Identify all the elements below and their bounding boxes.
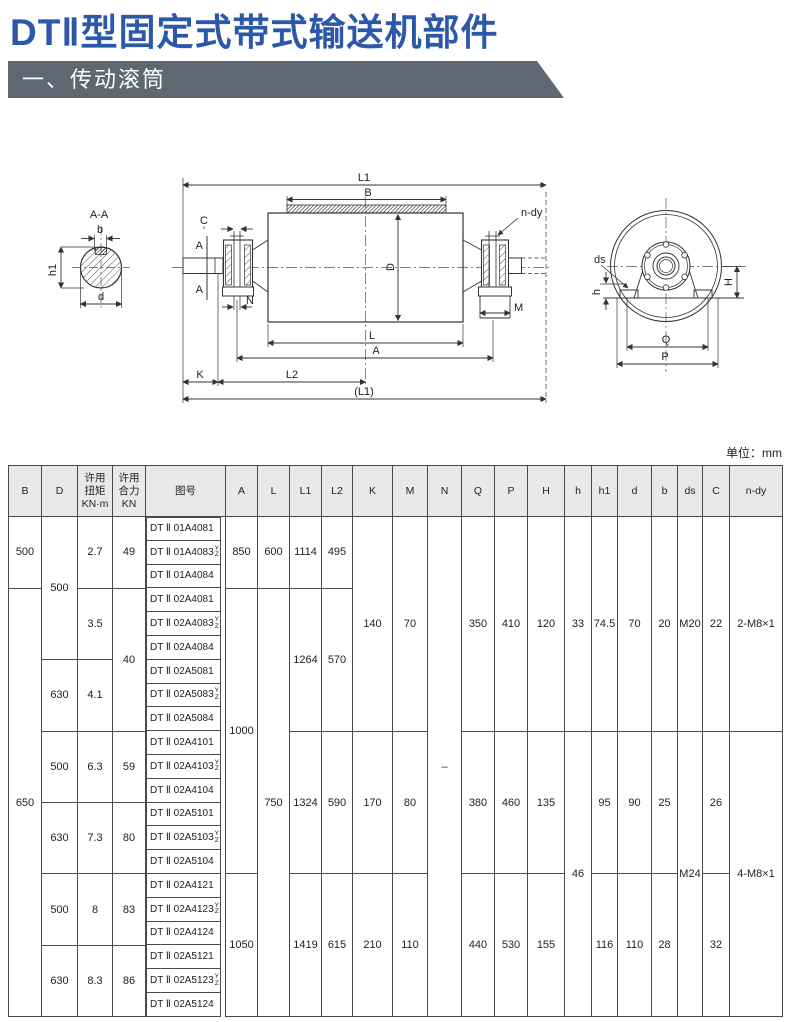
cell-L: 750: [258, 588, 290, 1016]
cell-Q: 440: [462, 874, 495, 1017]
col-force: 许用 合力 KN: [113, 466, 146, 517]
unit-note: 单位：mm: [8, 444, 782, 461]
cell-L1: 1419: [290, 874, 322, 1017]
dim-label-Q: Q: [662, 334, 671, 346]
cell-d: 70: [618, 517, 652, 732]
cell-A: 1000: [226, 588, 258, 874]
cell-P: 530: [495, 874, 528, 1017]
cell-M: 70: [393, 517, 428, 732]
drawing-number-cell: DT Ⅱ 01A4084: [146, 565, 226, 589]
section-view-a-a: A-A b h1 d: [47, 209, 130, 309]
dim-label-L: L: [369, 330, 375, 342]
col-ds: ds: [678, 466, 703, 517]
section-banner-label: 一、传动滚筒: [8, 61, 564, 98]
cell-h: 33: [565, 517, 592, 732]
cell-A: 1050: [226, 874, 258, 1017]
dim-label-b: b: [97, 224, 103, 236]
cell-H: 120: [528, 517, 565, 732]
drawing-number-cell: DT Ⅱ 02A4121: [146, 874, 226, 898]
end-view: ds h H Q P: [591, 198, 746, 372]
cell-torque: 2.7: [78, 517, 113, 589]
cell-torque: 6.3: [78, 731, 113, 802]
dim-label-A: A: [372, 345, 380, 357]
table-row: 500 8 83 DT Ⅱ 02A4121 1050 1419 615 210 …: [9, 874, 783, 898]
cell-D: 630: [42, 803, 78, 874]
col-L2: L2: [322, 466, 353, 517]
dim-label-H: H: [723, 278, 735, 286]
col-K: K: [353, 466, 393, 517]
section-marker-a-bottom: A: [196, 284, 204, 296]
lagging-band: [287, 205, 446, 213]
drawing-number-cell: DT Ⅱ 02A4103YZ: [146, 755, 226, 779]
cell-h1: 95: [592, 731, 618, 874]
page: DTⅡ型固定式带式输送机部件 一、传动滚筒 A-A: [0, 0, 800, 1022]
cell-B: 650: [9, 588, 42, 1016]
keyway: [96, 248, 107, 255]
col-torque: 许用 扭矩 KN·m: [78, 466, 113, 517]
col-b: b: [652, 466, 678, 517]
dim-label-D: D: [385, 263, 397, 271]
col-M: M: [393, 466, 428, 517]
col-P: P: [495, 466, 528, 517]
dim-label-M: M: [514, 302, 523, 314]
cell-b: 20: [652, 517, 678, 732]
cell-force: 59: [113, 731, 146, 802]
cell-M: 110: [393, 874, 428, 1017]
dim-label-K: K: [196, 369, 204, 381]
drawing-number-cell: DT Ⅱ 02A5123YZ: [146, 969, 226, 993]
table-row: 500 6.3 59 DT Ⅱ 02A4101 1324 590 170 80 …: [9, 731, 783, 755]
cell-P: 460: [495, 731, 528, 874]
drawing-number-cell: DT Ⅱ 02A4124: [146, 922, 226, 946]
col-h: h: [565, 466, 592, 517]
right-bearing: [479, 231, 512, 318]
left-bearing: [223, 231, 254, 296]
cell-ndy: 4-M8×1: [730, 731, 783, 1017]
cell-L2: 495: [322, 517, 353, 589]
drawing-number-cell: DT Ⅱ 02A4123YZ: [146, 898, 226, 922]
cell-K: 210: [353, 874, 393, 1017]
dim-label-d: d: [98, 291, 104, 303]
col-C: C: [703, 466, 730, 517]
cell-L2: 570: [322, 588, 353, 731]
col-Q: Q: [462, 466, 495, 517]
col-A: A: [226, 466, 258, 517]
cell-torque: 3.5: [78, 588, 113, 659]
drawing-number-cell: DT Ⅱ 02A5083YZ: [146, 684, 226, 708]
cell-D: 630: [42, 660, 78, 731]
cell-L1: 1114: [290, 517, 322, 589]
dim-label-N: N: [246, 295, 254, 307]
cell-ds: M24: [678, 731, 703, 1017]
section-banner: 一、传动滚筒: [8, 61, 564, 98]
col-H: H: [528, 466, 565, 517]
cell-C: 32: [703, 874, 730, 1017]
cell-D: 630: [42, 945, 78, 1016]
drawing-number-cell: DT Ⅱ 02A4101: [146, 731, 226, 755]
cell-torque: 8.3: [78, 945, 113, 1016]
cell-h1: 116: [592, 874, 618, 1017]
dim-label-h1: h1: [47, 264, 59, 276]
cell-force: 86: [113, 945, 146, 1016]
cell-force: 83: [113, 874, 146, 945]
cell-Q: 350: [462, 517, 495, 732]
drawing-number-cell: DT Ⅱ 02A5104: [146, 850, 226, 874]
drawing-number-cell: DT Ⅱ 02A5103YZ: [146, 826, 226, 850]
drawing-number-cell: DT Ⅱ 02A5101: [146, 803, 226, 827]
col-N: N: [428, 466, 462, 517]
drawing-number-cell: DT Ⅱ 02A5081: [146, 660, 226, 684]
cell-force: 40: [113, 588, 146, 731]
drawing-number-cell: DT Ⅱ 02A4104: [146, 779, 226, 803]
section-marker-a-top: A: [196, 240, 204, 252]
drawing-number-cell: DT Ⅱ 02A4084: [146, 636, 226, 660]
dim-label-P: P: [661, 351, 668, 363]
cell-N: –: [428, 517, 462, 1017]
col-D: D: [42, 466, 78, 517]
cell-D: 500: [42, 874, 78, 945]
cell-K: 140: [353, 517, 393, 732]
col-d: d: [618, 466, 652, 517]
cell-ndy: 2-M8×1: [730, 517, 783, 732]
cell-A: 850: [226, 517, 258, 589]
cell-torque: 8: [78, 874, 113, 945]
page-title: DTⅡ型固定式带式输送机部件: [10, 2, 499, 56]
table-row: 500 500 2.7 49 DT Ⅱ 01A4081 850 600 1114…: [9, 517, 783, 541]
spec-table-wrap: B D 许用 扭矩 KN·m 许用 合力 KN 图号 A L L1 L2 K M…: [8, 465, 782, 1017]
section-label: A-A: [90, 209, 109, 221]
cell-Q: 380: [462, 731, 495, 874]
cell-force: 49: [113, 517, 146, 589]
cell-D: 500: [42, 731, 78, 802]
cell-M: 80: [393, 731, 428, 874]
cell-C: 26: [703, 731, 730, 874]
cell-ds: M20: [678, 517, 703, 732]
dim-label-B: B: [364, 187, 371, 199]
col-tuhao: 图号: [146, 466, 226, 517]
front-view: L1 B D A A: [172, 172, 552, 403]
cell-torque: 4.1: [78, 660, 113, 731]
dim-label-h: h: [591, 289, 603, 295]
cell-torque: 7.3: [78, 803, 113, 874]
col-B: B: [9, 466, 42, 517]
cell-L1: 1324: [290, 731, 322, 874]
col-h1: h1: [592, 466, 618, 517]
dim-label-L1: L1: [358, 172, 370, 184]
cell-K: 170: [353, 731, 393, 874]
cell-h1: 74.5: [592, 517, 618, 732]
technical-drawing: A-A b h1 d: [0, 110, 800, 455]
cell-b: 28: [652, 874, 678, 1017]
drawing-number-cell: DT Ⅱ 01A4081: [146, 517, 226, 541]
dim-label-ds: ds: [594, 254, 606, 266]
drawing-number-cell: DT Ⅱ 01A4083YZ: [146, 541, 226, 565]
header-row: B D 许用 扭矩 KN·m 许用 合力 KN 图号 A L L1 L2 K M…: [9, 466, 783, 517]
cell-C: 22: [703, 517, 730, 732]
drawing-number-cell: DT Ⅱ 02A5121: [146, 945, 226, 969]
dim-label-L1-paren: (L1): [354, 386, 374, 398]
cell-L2: 615: [322, 874, 353, 1017]
col-L: L: [258, 466, 290, 517]
dim-label-C: C: [200, 215, 208, 227]
cell-d: 90: [618, 731, 652, 874]
cell-D: 500: [42, 517, 78, 660]
cell-force: 80: [113, 803, 146, 874]
cell-B: 500: [9, 517, 42, 589]
col-ndy: n-dy: [730, 466, 783, 517]
cell-H: 155: [528, 874, 565, 1017]
drawing-number-cell: DT Ⅱ 02A5124: [146, 993, 226, 1017]
cell-d: 110: [618, 874, 652, 1017]
cell-P: 410: [495, 517, 528, 732]
drawing-number-cell: DT Ⅱ 02A5084: [146, 707, 226, 731]
col-L1: L1: [290, 466, 322, 517]
cell-L1: 1264: [290, 588, 322, 731]
dim-label-n-dy: n-dy: [521, 207, 543, 219]
cell-H: 135: [528, 731, 565, 874]
drawing-number-cell: DT Ⅱ 02A4083YZ: [146, 612, 226, 636]
cell-b: 25: [652, 731, 678, 874]
dim-label-L2: L2: [286, 369, 298, 381]
cell-L: 600: [258, 517, 290, 589]
cell-L2: 590: [322, 731, 353, 874]
cell-h: 46: [565, 731, 592, 1017]
spec-table: B D 许用 扭矩 KN·m 许用 合力 KN 图号 A L L1 L2 K M…: [8, 465, 783, 1017]
drawing-number-cell: DT Ⅱ 02A4081: [146, 588, 226, 612]
